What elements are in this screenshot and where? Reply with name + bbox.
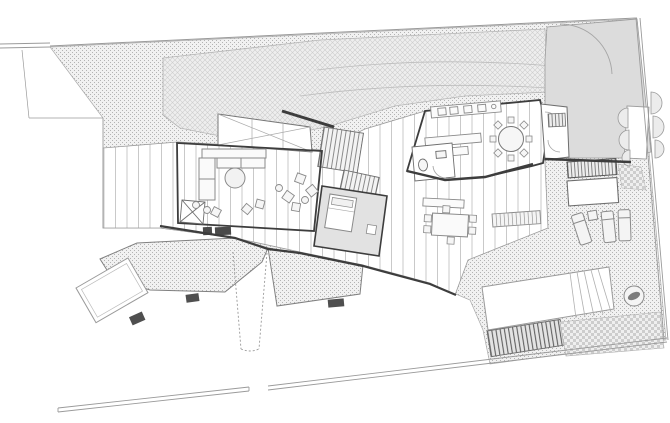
sink-icon: [436, 151, 447, 159]
floor-plan-drawing: [0, 0, 670, 423]
water-feature: [624, 286, 644, 306]
vestibule: [541, 104, 569, 160]
bedside-table-icon: [366, 224, 376, 234]
street-wall: [58, 387, 249, 412]
bed-icon: [325, 194, 357, 232]
slatted-bench: [492, 211, 541, 227]
staircase-upper: [318, 127, 364, 173]
entry-steps: [548, 113, 566, 127]
floor-plan-page: [0, 0, 670, 423]
side-table-icon: [587, 210, 597, 220]
study-table-icon: [431, 213, 468, 237]
wc-room: [412, 143, 455, 181]
bedroom: [314, 186, 387, 256]
canopy: [567, 178, 619, 206]
coffee-table-icon: [225, 168, 245, 188]
